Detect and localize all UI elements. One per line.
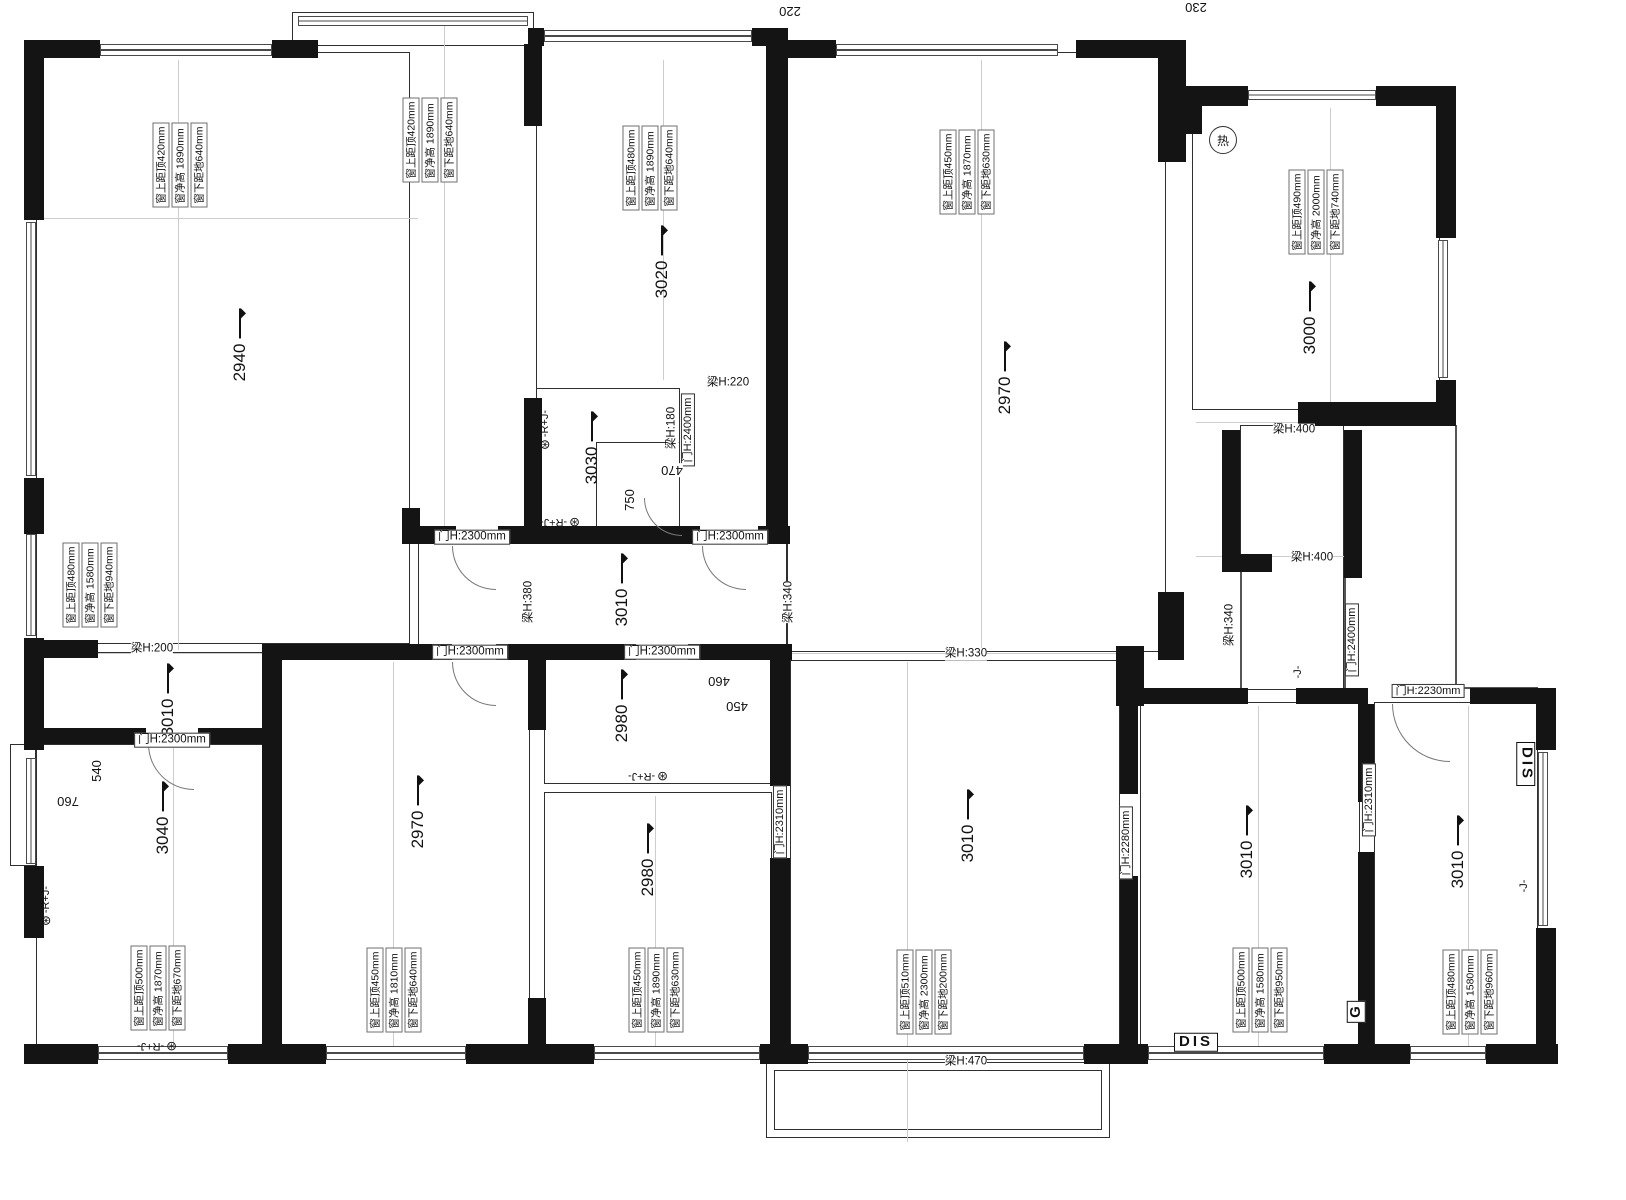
room-height-value: 3010 <box>612 589 632 627</box>
room-height-value: 3000 <box>1300 317 1320 355</box>
window-symbol <box>298 16 528 26</box>
room-outline <box>544 658 772 784</box>
wall-segment <box>402 508 420 544</box>
beam-label: 梁H:180 <box>666 407 679 449</box>
level-mark-icon <box>1309 282 1311 312</box>
door-height-label: 门H:2400mm <box>681 394 695 467</box>
level-mark-icon <box>162 782 164 812</box>
sprinkler-label: ⊛-R+J- <box>39 886 53 926</box>
sprinkler-label: ⊛-R+J- <box>538 410 552 450</box>
window-clear-height: 窗净高 1810mm <box>386 947 403 1032</box>
window-annotation: 窗上距顶500mm 窗净高 1870mm 窗下距地670mm <box>131 945 186 1030</box>
level-mark-icon <box>621 554 623 584</box>
door-height-label: 门H:2300mm <box>134 733 210 748</box>
wall-segment <box>1536 928 1556 1064</box>
room-height-value: 3010 <box>958 825 978 863</box>
level-mark-icon <box>647 824 649 854</box>
level-mark-icon <box>1457 816 1459 846</box>
gas-meter-label: G <box>1347 1001 1366 1023</box>
level-mark-icon <box>167 664 169 694</box>
wall-segment <box>24 1044 98 1064</box>
window-sill-height: 窗下距地960mm <box>1481 949 1498 1034</box>
level-mark-icon <box>417 776 419 806</box>
room-height-label: 3040 <box>153 782 173 855</box>
j-label: -J- <box>1518 880 1530 893</box>
wall-segment <box>1536 688 1556 750</box>
water-heater-symbol: 热 <box>1209 126 1237 154</box>
wall-segment <box>270 644 452 660</box>
wall-segment <box>1222 430 1240 572</box>
window-annotation: 窗上距顶450mm 窗净高 1810mm 窗下距地640mm <box>367 947 422 1032</box>
sprinkler-icon: ⊛ <box>569 515 580 529</box>
room-height-label: 2940 <box>230 309 250 382</box>
room-outline <box>790 660 1120 1048</box>
window-clear-height: 窗净高 1580mm <box>82 542 99 627</box>
window-sill-height: 窗下距地740mm <box>1327 169 1344 254</box>
j-label: -J- <box>1292 666 1304 679</box>
door-height-label: 门H:2310mm <box>773 786 787 859</box>
window-symbol <box>1538 752 1548 926</box>
beam-label: 梁H:380 <box>523 581 536 623</box>
window-annotation: 窗上距顶500mm 窗净高 1580mm 窗下距地950mm <box>1233 947 1288 1032</box>
sprinkler-label: ⊛-R+J- <box>540 515 580 529</box>
sprinkler-icon: ⊛ <box>657 769 668 783</box>
window-top-distance: 窗上距顶480mm <box>63 542 80 627</box>
wall-segment <box>752 28 788 46</box>
window-top-distance: 窗上距顶480mm <box>623 125 640 210</box>
beam-label: 梁H:330 <box>945 648 987 661</box>
wall-segment <box>788 40 836 58</box>
dim-label: 470 <box>661 463 683 477</box>
window-annotation: 窗上距顶480mm 窗净高 1580mm 窗下距地960mm <box>1443 949 1498 1034</box>
window-annotation: 窗上距顶450mm 窗净高 1890mm 窗下距地630mm <box>629 947 684 1032</box>
sprinkler-text: -R+J- <box>40 886 52 913</box>
wall-segment <box>24 478 44 534</box>
window-top-distance: 窗上距顶480mm <box>1443 949 1460 1034</box>
wall-segment <box>228 1044 326 1064</box>
window-annotation: 窗上距顶450mm 窗净高 1870mm 窗下距地630mm <box>940 129 995 214</box>
wall-segment <box>272 40 318 58</box>
dim-label: 760 <box>57 794 79 808</box>
room-height-label: 3030 <box>582 412 602 485</box>
level-mark-icon <box>621 670 623 700</box>
top-dim-label: 220 <box>779 4 801 18</box>
window-symbol <box>594 1046 760 1060</box>
room-height-value: 3040 <box>153 817 173 855</box>
window-top-distance: 窗上距顶490mm <box>1289 169 1306 254</box>
window-annotation: 窗上距顶420mm 窗净高 1890mm 窗下距地640mm <box>403 97 458 182</box>
wall-segment <box>528 998 546 1048</box>
wall-segment <box>524 44 542 126</box>
window-annotation: 窗上距顶480mm 窗净高 1890mm 窗下距地640mm <box>623 125 678 210</box>
window-clear-height: 窗净高 1890mm <box>648 947 665 1032</box>
window-annotation: 窗上距顶420mm 窗净高 1890mm 窗下距地640mm <box>153 122 208 207</box>
room-height-value: 3030 <box>582 447 602 485</box>
wall-segment <box>1158 592 1184 660</box>
window-annotation: 窗上距顶490mm 窗净高 2000mm 窗下距地740mm <box>1289 169 1344 254</box>
wall-segment <box>24 640 98 658</box>
dim-line <box>1330 108 1331 402</box>
window-symbol <box>326 1046 466 1060</box>
window-sill-height: 窗下距地640mm <box>191 122 208 207</box>
room-height-value: 2940 <box>230 344 250 382</box>
door-height-label: 门H:2310mm <box>1362 764 1376 837</box>
door-height-label: 门H:2300mm <box>434 530 510 545</box>
wall-segment <box>1470 688 1540 704</box>
window-clear-height: 窗净高 2300mm <box>916 949 933 1034</box>
door-height-label: 门H:2300mm <box>692 530 768 545</box>
room-height-label: 2980 <box>612 670 632 743</box>
door-height-label: 门H:2280mm <box>1119 807 1133 880</box>
window-symbol <box>1248 90 1376 100</box>
dis-box-label: DIS <box>1174 1033 1218 1052</box>
room-height-value: 3010 <box>1448 851 1468 889</box>
window-clear-height: 窗净高 1870mm <box>959 129 976 214</box>
window-sill-height: 窗下距地950mm <box>1271 947 1288 1032</box>
room-height-label: 3010 <box>1237 806 1257 879</box>
dim-line <box>907 662 908 1142</box>
room-height-value: 2980 <box>612 705 632 743</box>
window-clear-height: 窗净高 1870mm <box>150 945 167 1030</box>
top-dim-label: 230 <box>1185 0 1207 14</box>
sprinkler-text: -R+J- <box>539 410 551 437</box>
level-mark-icon <box>239 309 241 339</box>
window-clear-height: 窗净高 2000mm <box>1308 169 1325 254</box>
beam-label: 梁H:470 <box>945 1056 987 1069</box>
wall-segment <box>262 754 282 1050</box>
wall-segment <box>262 644 282 756</box>
window-symbol <box>26 534 36 636</box>
beam-label: 梁H:340 <box>783 581 796 623</box>
room-height-value: 2970 <box>995 377 1015 415</box>
level-mark-icon <box>1004 342 1006 372</box>
dim-line <box>444 16 445 540</box>
level-mark-icon <box>591 412 593 442</box>
window-annotation: 窗上距顶480mm 窗净高 1580mm 窗下距地940mm <box>63 542 118 627</box>
window-top-distance: 窗上距顶500mm <box>1233 947 1250 1032</box>
window-sill-height: 窗下距地640mm <box>405 947 422 1032</box>
dim-line <box>663 60 664 380</box>
window-top-distance: 窗上距顶420mm <box>403 97 420 182</box>
room-height-value: 2970 <box>408 811 428 849</box>
wall-segment <box>688 644 792 660</box>
sprinkler-text: -R+J- <box>137 1040 164 1052</box>
balcony-outline-inner <box>774 1070 1102 1130</box>
beam-label: 梁H:400 <box>1291 552 1333 565</box>
wall-segment <box>1296 688 1368 704</box>
window-sill-height: 窗下距地630mm <box>978 129 995 214</box>
room-height-value: 3010 <box>1237 841 1257 879</box>
beam-label: 梁H:200 <box>131 643 173 656</box>
wall-segment <box>528 658 546 730</box>
window-top-distance: 窗上距顶510mm <box>897 949 914 1034</box>
dis-box-label: DIS <box>1517 742 1536 786</box>
sprinkler-icon: ⊛ <box>538 439 552 450</box>
window-symbol <box>836 44 1058 56</box>
wall-segment <box>766 44 788 384</box>
room-height-label: 2970 <box>995 342 1015 415</box>
sprinkler-label: ⊛-R+J- <box>137 1039 177 1053</box>
wall-segment <box>1344 430 1362 578</box>
room-height-value: 2980 <box>638 859 658 897</box>
dim-label: 750 <box>623 489 637 511</box>
corridor-line <box>1240 572 1242 690</box>
room-height-label: 3020 <box>652 226 672 299</box>
wall-segment <box>1158 40 1186 162</box>
window-sill-height: 窗下距地200mm <box>935 949 952 1034</box>
wall-segment <box>770 858 790 1048</box>
wall-segment <box>1298 402 1456 426</box>
wall-segment <box>1084 1044 1148 1064</box>
wall-segment <box>1184 98 1202 134</box>
window-symbol <box>544 30 752 42</box>
floor-plan-canvas: 2940 3020 3030 2970 3000 3010 3010 3040 … <box>0 0 1626 1200</box>
window-sill-height: 窗下距地630mm <box>667 947 684 1032</box>
wall-segment <box>24 40 44 220</box>
beam-label: 梁H:220 <box>707 377 749 390</box>
door-height-label: 门H:2300mm <box>624 645 700 660</box>
window-sill-height: 窗下距地940mm <box>101 542 118 627</box>
door-height-label: 门H:2400mm <box>1345 604 1359 677</box>
window-top-distance: 窗上距顶420mm <box>153 122 170 207</box>
wall-segment <box>24 728 146 744</box>
window-clear-height: 窗净高 1890mm <box>422 97 439 182</box>
room-height-label: 3010 <box>612 554 632 627</box>
wall-segment <box>496 644 636 660</box>
sprinkler-label: ⊛-R+J- <box>628 769 668 783</box>
sprinkler-icon: ⊛ <box>39 915 53 926</box>
window-symbol <box>100 44 272 56</box>
room-height-label: 2970 <box>408 776 428 849</box>
wall-segment <box>528 28 544 46</box>
wall-segment <box>1436 86 1456 238</box>
window-annotation: 窗上距顶510mm 窗净高 2300mm 窗下距地200mm <box>897 949 952 1034</box>
beam-label: 梁H:340 <box>1224 604 1237 646</box>
wall-segment <box>1222 554 1272 572</box>
window-top-distance: 窗上距顶450mm <box>367 947 384 1032</box>
window-symbol <box>1438 240 1448 378</box>
wall-segment <box>766 380 788 542</box>
level-mark-icon <box>967 790 969 820</box>
window-sill-height: 窗下距地670mm <box>169 945 186 1030</box>
room-height-value: 3010 <box>158 699 178 737</box>
window-symbol <box>26 222 36 476</box>
window-top-distance: 窗上距顶450mm <box>629 947 646 1032</box>
level-mark-icon <box>661 226 663 256</box>
wall-segment <box>1120 876 1138 1048</box>
sprinkler-text: -R+J- <box>628 770 655 782</box>
room-height-value: 3020 <box>652 261 672 299</box>
wall-segment <box>1130 688 1248 704</box>
sprinkler-icon: ⊛ <box>166 1039 177 1053</box>
room-outline <box>36 652 264 736</box>
dim-label: 460 <box>708 674 730 688</box>
room-height-label: 3010 <box>158 664 178 737</box>
dim-line <box>36 218 418 219</box>
window-top-distance: 窗上距顶500mm <box>131 945 148 1030</box>
window-clear-height: 窗净高 1580mm <box>1252 947 1269 1032</box>
wall-segment <box>770 658 790 786</box>
window-symbol <box>26 758 36 864</box>
room-height-label: 3010 <box>1448 816 1468 889</box>
sprinkler-text: -R+J- <box>540 516 567 528</box>
dim-label: 450 <box>726 699 748 713</box>
beam-label: 梁H:400 <box>1273 424 1315 437</box>
door-height-label: 门H:2300mm <box>432 645 508 660</box>
dim-label: 540 <box>90 760 104 782</box>
room-height-label: 3010 <box>958 790 978 863</box>
window-clear-height: 窗净高 1890mm <box>642 125 659 210</box>
window-top-distance: 窗上距顶450mm <box>940 129 957 214</box>
level-mark-icon <box>1246 806 1248 836</box>
door-height-label: 门H:2230mm <box>1392 684 1465 698</box>
window-symbol <box>1410 1046 1486 1060</box>
room-height-label: 2980 <box>638 824 658 897</box>
window-clear-height: 窗净高 1890mm <box>172 122 189 207</box>
window-sill-height: 窗下距地640mm <box>661 125 678 210</box>
building-edge <box>1455 425 1457 690</box>
window-sill-height: 窗下距地640mm <box>441 97 458 182</box>
room-height-label: 3000 <box>1300 282 1320 355</box>
wall-segment <box>1120 700 1138 794</box>
window-clear-height: 窗净高 1580mm <box>1462 949 1479 1034</box>
